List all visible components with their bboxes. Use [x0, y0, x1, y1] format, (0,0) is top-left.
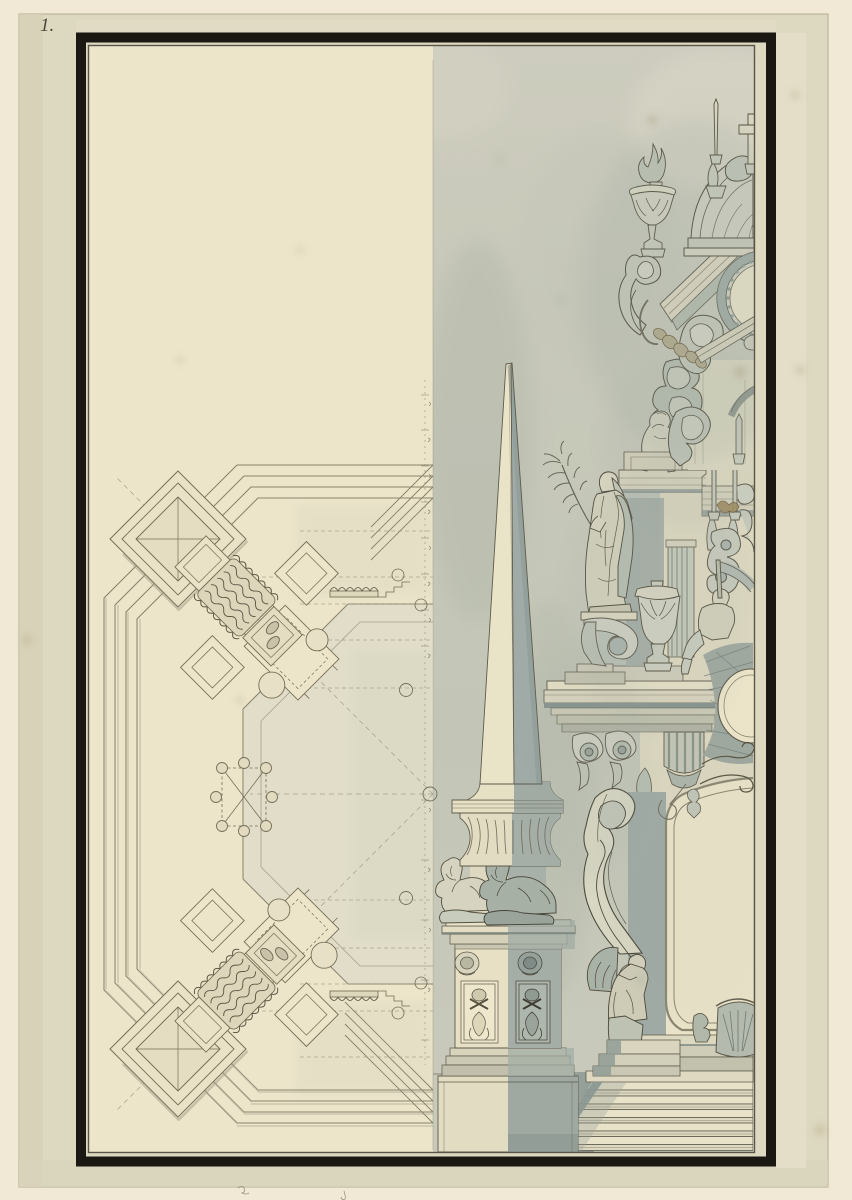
svg-text:1.: 1. — [40, 15, 54, 36]
